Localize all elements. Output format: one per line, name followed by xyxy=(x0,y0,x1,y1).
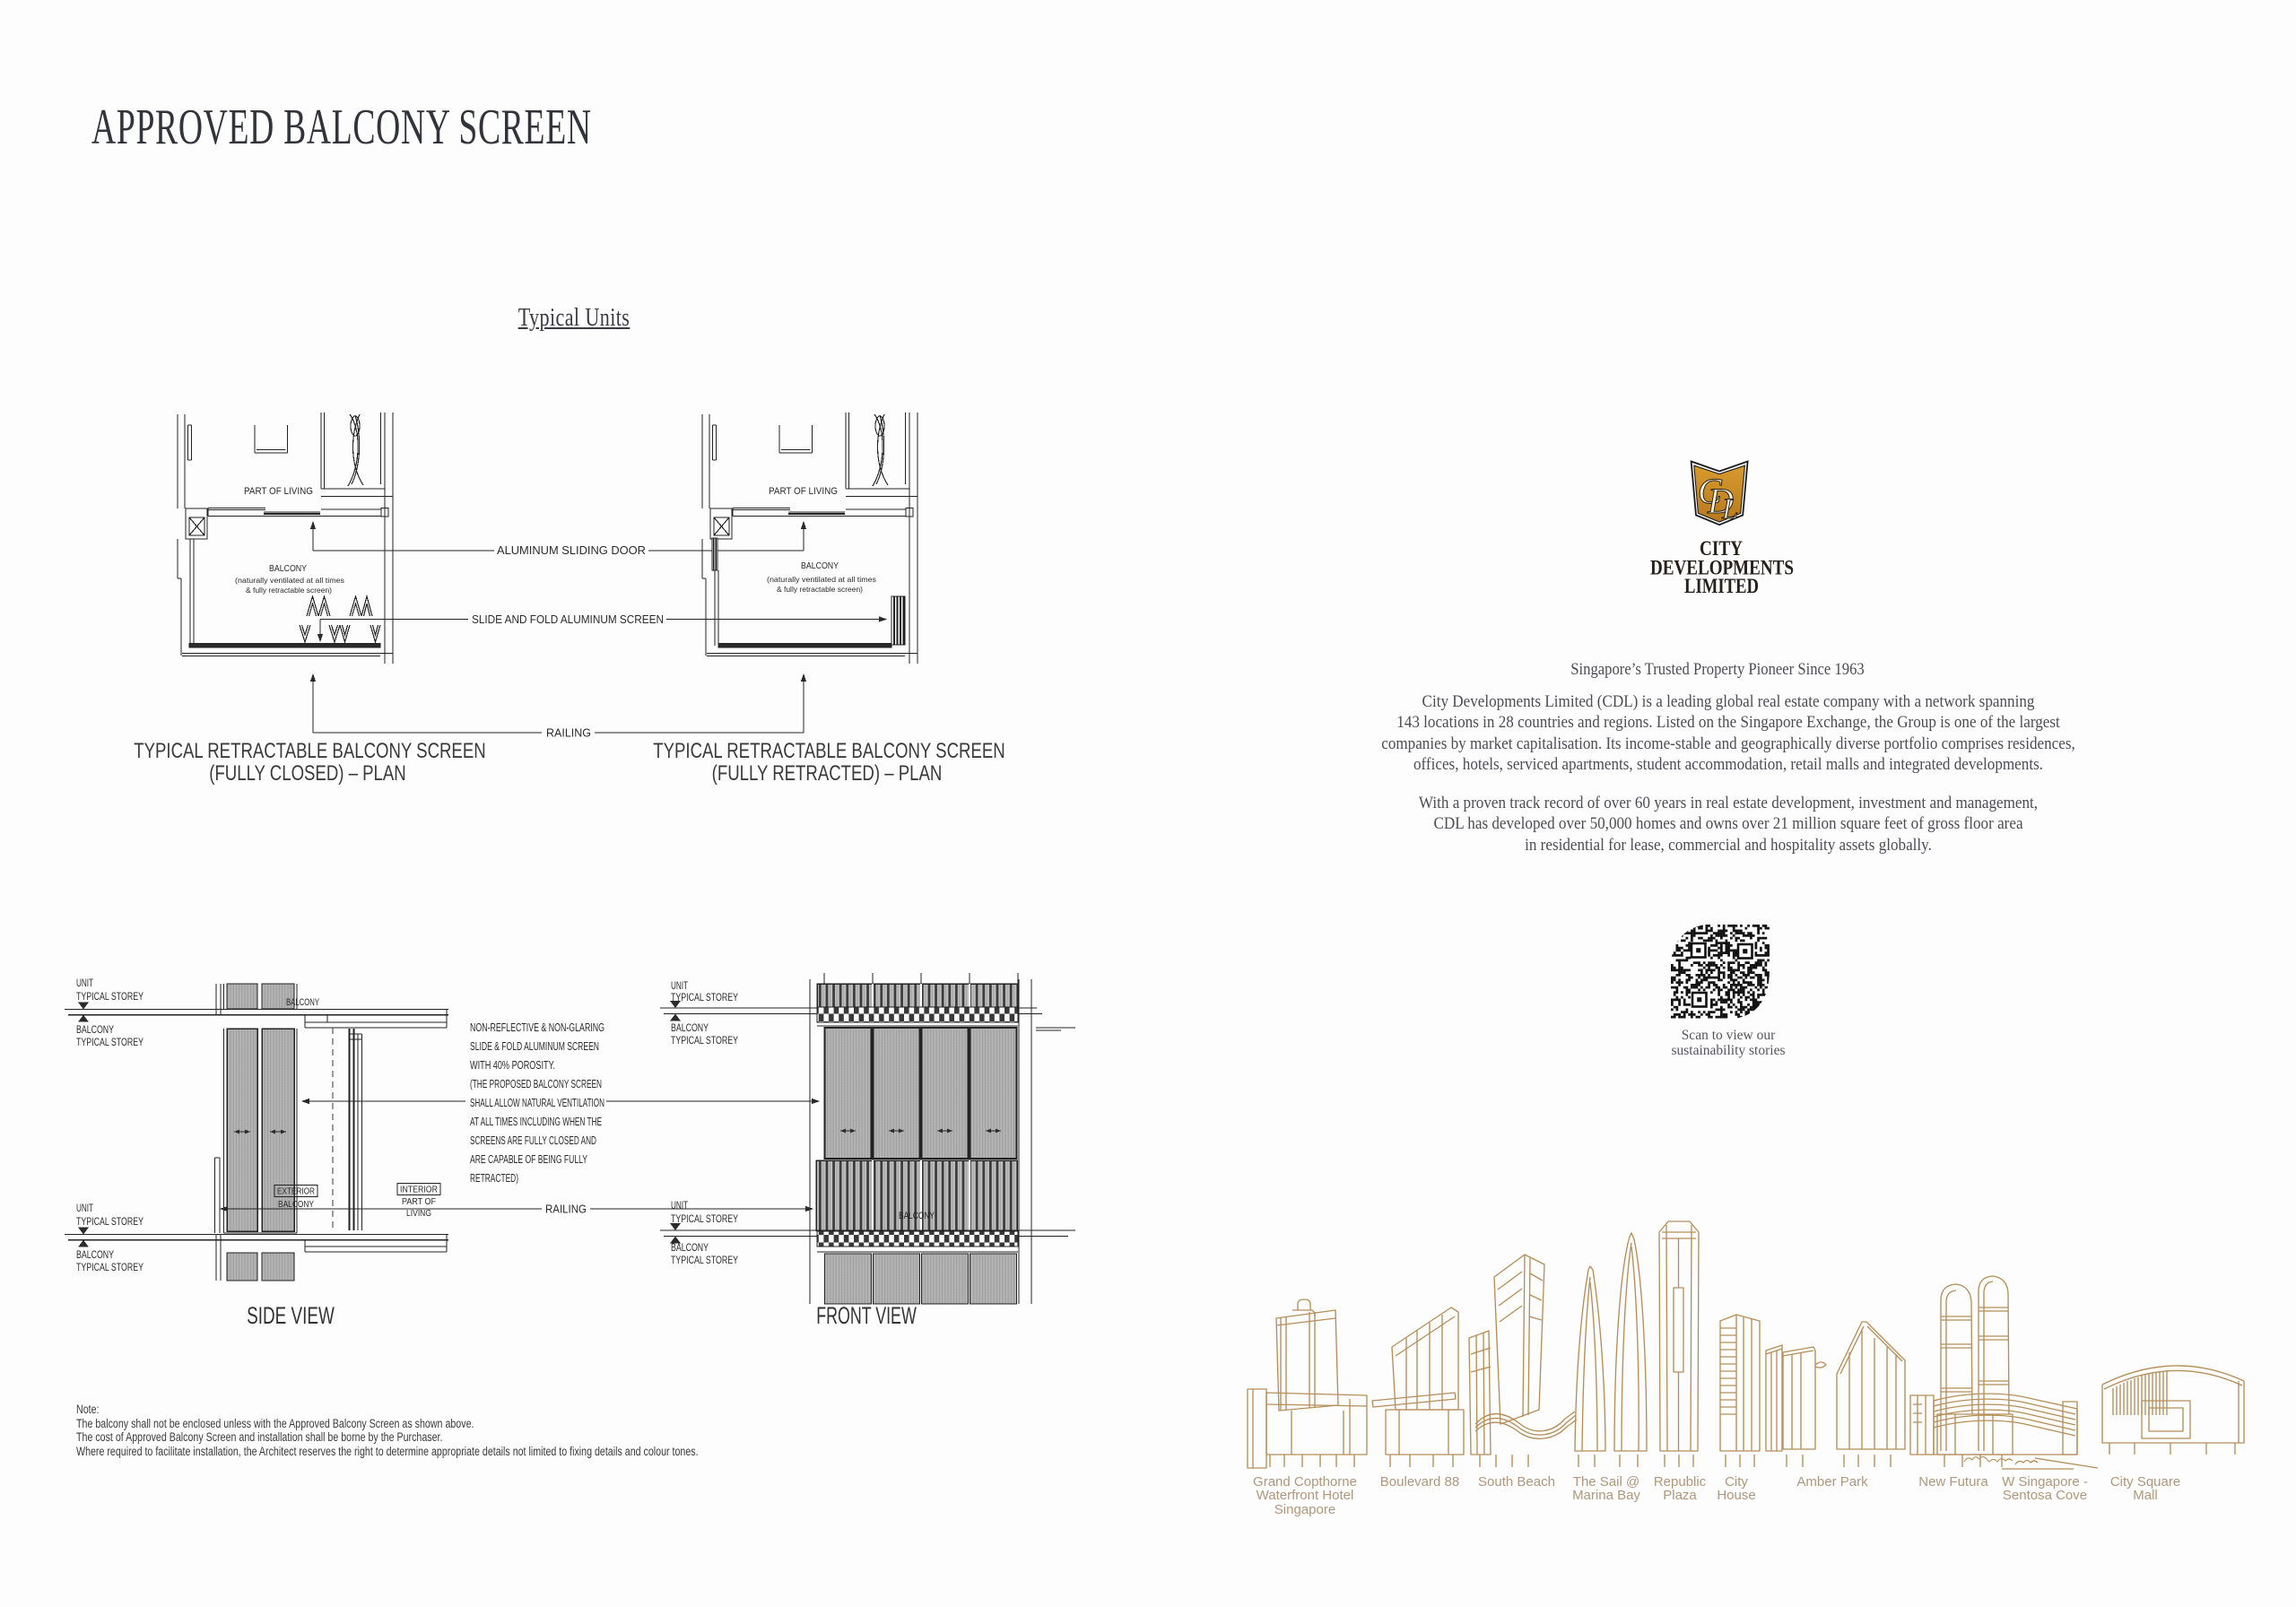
svg-text:PART OF: PART OF xyxy=(402,1196,436,1207)
svg-text:RAILING: RAILING xyxy=(545,1203,587,1216)
svg-text:RETRACTED): RETRACTED) xyxy=(470,1172,518,1185)
svg-text:UNIT: UNIT xyxy=(76,1202,93,1214)
svg-text:TYPICAL STOREY: TYPICAL STOREY xyxy=(76,1036,143,1048)
svg-text:SLIDE & FOLD ALUMINUM SCREEN: SLIDE & FOLD ALUMINUM SCREEN xyxy=(470,1040,599,1053)
svg-text:BALCONY: BALCONY xyxy=(671,1021,709,1034)
svg-text:TYPICAL STOREY: TYPICAL STOREY xyxy=(76,1261,143,1273)
svg-text:AT ALL TIMES INCLUDING WHEN TH: AT ALL TIMES INCLUDING WHEN THE xyxy=(470,1116,602,1128)
svg-text:TYPICAL STOREY: TYPICAL STOREY xyxy=(671,1034,738,1047)
svg-text:BALCONY: BALCONY xyxy=(286,997,319,1008)
svg-text:L: L xyxy=(1721,493,1738,526)
svg-text:BALCONY: BALCONY xyxy=(76,1023,114,1036)
svg-text:WITH 40% POROSITY.: WITH 40% POROSITY. xyxy=(470,1059,555,1072)
svg-text:(naturally ventilated at all t: (naturally ventilated at all times xyxy=(767,575,876,584)
svg-text:BALCONY: BALCONY xyxy=(269,563,307,574)
svg-text:TYPICAL STOREY: TYPICAL STOREY xyxy=(76,990,143,1003)
svg-text:TYPICAL STOREY: TYPICAL STOREY xyxy=(671,1254,738,1266)
svg-text:BALCONY: BALCONY xyxy=(801,560,839,571)
svg-text:BALCONY: BALCONY xyxy=(899,1211,935,1221)
svg-text:SLIDE AND FOLD ALUMINUM SCREEN: SLIDE AND FOLD ALUMINUM SCREEN xyxy=(472,613,664,626)
svg-text:ALUMINUM SLIDING DOOR: ALUMINUM SLIDING DOOR xyxy=(497,544,646,557)
svg-text:& fully retractable screen): & fully retractable screen) xyxy=(246,586,332,595)
svg-text:INTERIOR: INTERIOR xyxy=(400,1185,438,1195)
svg-text:BALCONY: BALCONY xyxy=(671,1241,709,1254)
svg-text:& fully retractable screen): & fully retractable screen) xyxy=(777,585,863,594)
svg-text:EXTERIOR: EXTERIOR xyxy=(277,1186,315,1197)
svg-text:UNIT: UNIT xyxy=(671,1199,688,1212)
svg-text:(THE PROPOSED BALCONY SCREEN: (THE PROPOSED BALCONY SCREEN xyxy=(470,1078,602,1090)
svg-text:PART OF LIVING: PART OF LIVING xyxy=(244,486,313,497)
svg-text:SCREENS ARE FULLY CLOSED AND: SCREENS ARE FULLY CLOSED AND xyxy=(470,1134,596,1147)
svg-text:RAILING: RAILING xyxy=(546,727,591,740)
svg-text:BALCONY: BALCONY xyxy=(76,1248,114,1261)
svg-text:(naturally ventilated at all t: (naturally ventilated at all times xyxy=(235,576,344,585)
svg-text:SHALL ALLOW NATURAL VENTILATIO: SHALL ALLOW NATURAL VENTILATION xyxy=(470,1097,604,1109)
svg-text:TYPICAL STOREY: TYPICAL STOREY xyxy=(671,991,738,1003)
svg-text:NON-REFLECTIVE & NON-GLARING: NON-REFLECTIVE & NON-GLARING xyxy=(470,1021,604,1034)
svg-text:LIVING: LIVING xyxy=(406,1208,431,1219)
svg-text:UNIT: UNIT xyxy=(76,977,93,989)
svg-text:ARE CAPABLE OF BEING FULLY: ARE CAPABLE OF BEING FULLY xyxy=(470,1153,587,1166)
svg-text:BALCONY: BALCONY xyxy=(278,1199,314,1210)
svg-text:TYPICAL STOREY: TYPICAL STOREY xyxy=(671,1212,738,1225)
svg-text:UNIT: UNIT xyxy=(671,979,688,992)
svg-text:TYPICAL STOREY: TYPICAL STOREY xyxy=(76,1215,143,1228)
svg-text:PART OF LIVING: PART OF LIVING xyxy=(769,486,838,497)
svg-text:LIMITED: LIMITED xyxy=(1684,575,1759,597)
